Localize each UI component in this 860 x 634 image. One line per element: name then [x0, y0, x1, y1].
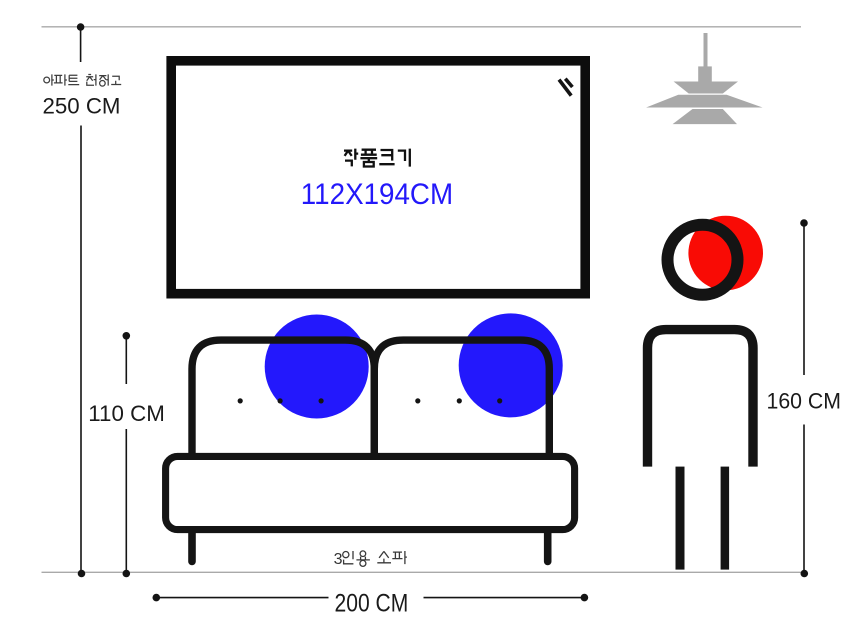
svg-text:110 CM: 110 CM	[88, 401, 165, 426]
svg-text:112X194CM: 112X194CM	[301, 178, 453, 211]
svg-text:200 CM: 200 CM	[335, 589, 409, 617]
svg-text:160 CM: 160 CM	[767, 388, 842, 413]
svg-text:250 CM: 250 CM	[43, 93, 121, 118]
svg-text:3: 3	[334, 551, 343, 568]
